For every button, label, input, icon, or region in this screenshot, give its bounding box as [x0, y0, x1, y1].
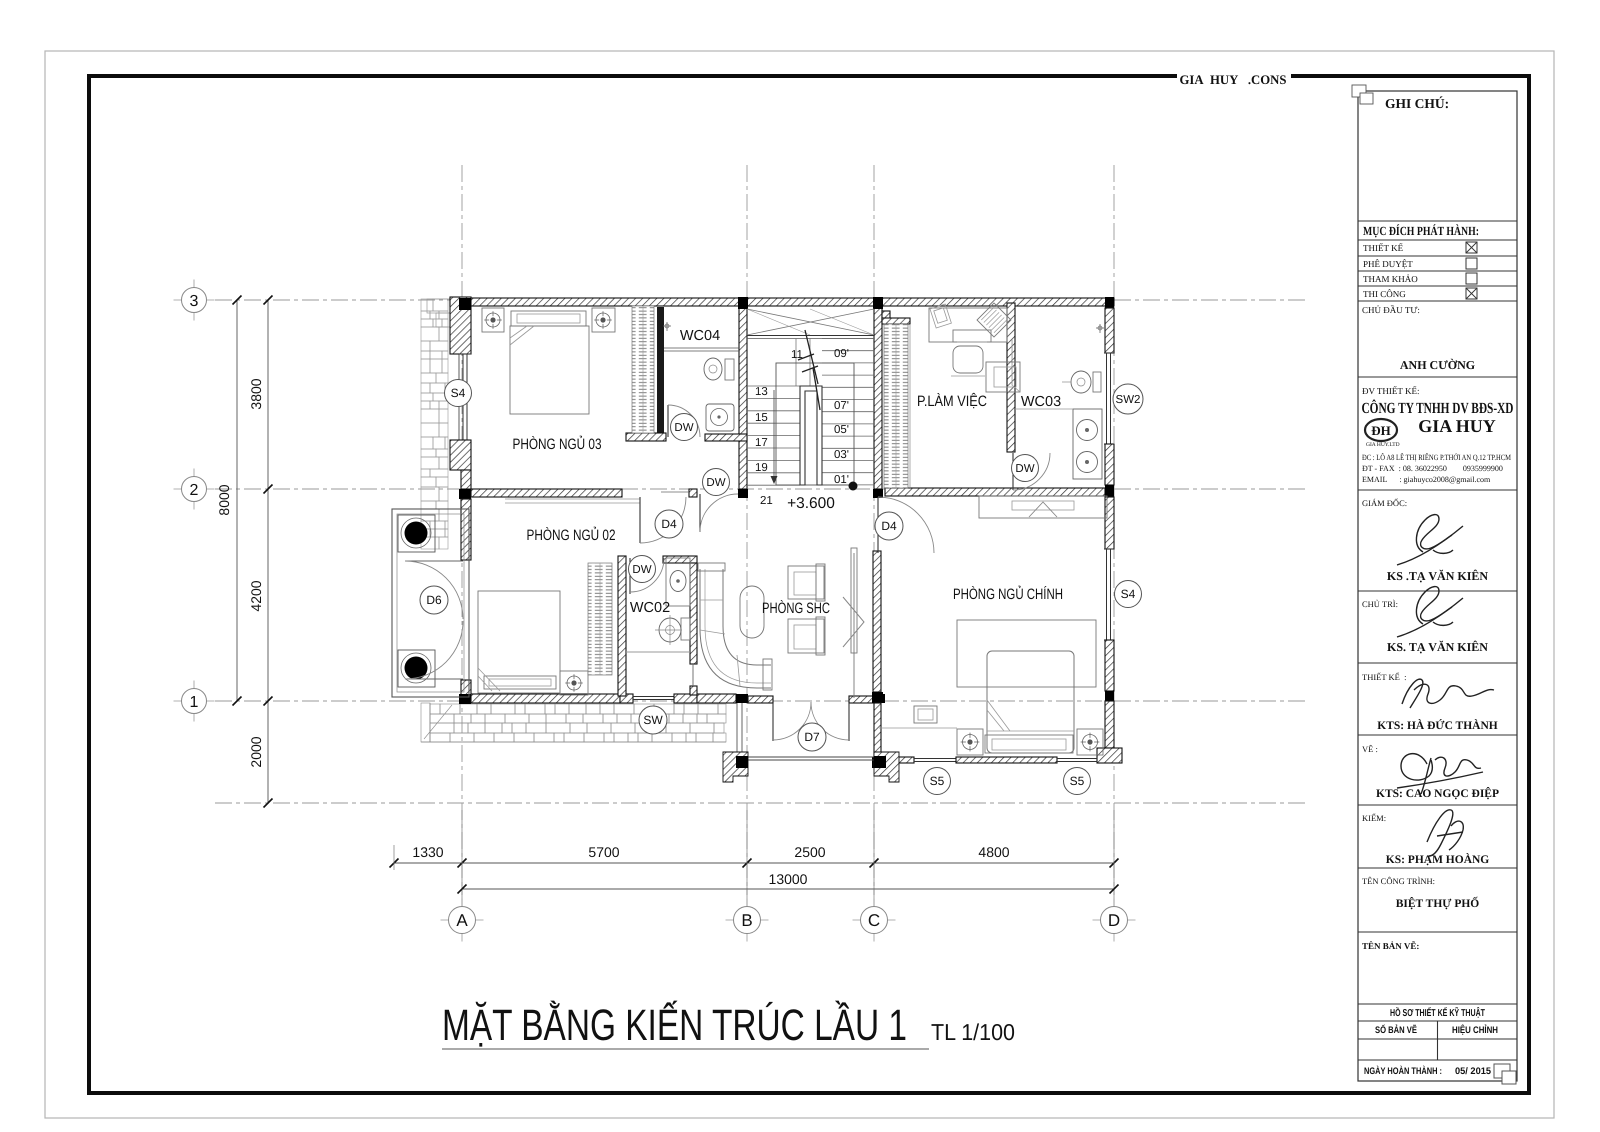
svg-text:MỤC ĐÍCH PHÁT HÀNH:: MỤC ĐÍCH PHÁT HÀNH: [1363, 224, 1479, 238]
svg-text:GIA HUY.LTD: GIA HUY.LTD [1366, 442, 1400, 448]
svg-text:KTS: CAO NGỌC ĐIỆP: KTS: CAO NGỌC ĐIỆP [1376, 787, 1499, 800]
svg-text:09': 09' [834, 348, 849, 360]
svg-text:PHÒNG SHC: PHÒNG SHC [762, 599, 830, 617]
svg-text:+3.600: +3.600 [787, 495, 835, 512]
svg-text:3800: 3800 [248, 378, 264, 409]
svg-text:07': 07' [834, 400, 849, 412]
svg-text:TÊN CÔNG TRÌNH:: TÊN CÔNG TRÌNH: [1362, 876, 1435, 886]
svg-text:NGÀY HOÀN THÀNH :: NGÀY HOÀN THÀNH : [1364, 1065, 1442, 1077]
svg-text:CHỦ ĐẦU TƯ:: CHỦ ĐẦU TƯ: [1362, 305, 1420, 315]
svg-text:PHÒNG NGỦ 02: PHÒNG NGỦ 02 [527, 526, 616, 544]
svg-text:KTS: HÀ ĐỨC THÀNH: KTS: HÀ ĐỨC THÀNH [1377, 719, 1497, 732]
svg-text:HIỆU CHỈNH: HIỆU CHỈNH [1452, 1024, 1498, 1036]
svg-text:05/ 2015: 05/ 2015 [1455, 1066, 1492, 1077]
svg-text:21: 21 [760, 495, 773, 507]
svg-text:D7: D7 [804, 730, 820, 744]
svg-text:THIẾT KẾ: THIẾT KẾ [1363, 243, 1404, 253]
svg-text:17: 17 [755, 437, 768, 449]
svg-text:3: 3 [190, 293, 199, 310]
svg-text:2: 2 [190, 482, 199, 499]
svg-text:SW: SW [643, 713, 663, 727]
svg-text:2000: 2000 [248, 736, 264, 767]
svg-text:03': 03' [834, 449, 849, 461]
svg-text:B: B [741, 911, 752, 930]
svg-text:DW: DW [674, 422, 693, 434]
svg-text:S5: S5 [1070, 774, 1085, 788]
svg-text:ĐV THIẾT KẾ:: ĐV THIẾT KẾ: [1362, 386, 1420, 396]
svg-text:C: C [868, 911, 880, 930]
svg-text:D6: D6 [426, 593, 442, 607]
svg-text:4200: 4200 [248, 580, 264, 611]
svg-text:2500: 2500 [794, 844, 825, 860]
svg-text:KS .TẠ VĂN KIÊN: KS .TẠ VĂN KIÊN [1387, 569, 1488, 583]
svg-text:01': 01' [834, 474, 849, 486]
svg-text:GIÁM ĐỐC:: GIÁM ĐỐC: [1362, 498, 1407, 508]
svg-text:19: 19 [755, 462, 768, 474]
svg-text:D4: D4 [881, 519, 897, 533]
svg-text:D4: D4 [661, 517, 677, 531]
svg-text:PHÒNG NGỦ CHÍNH: PHÒNG NGỦ CHÍNH [953, 585, 1063, 603]
svg-text:S4: S4 [451, 386, 466, 400]
svg-text:PHÊ DUYỆT: PHÊ DUYỆT [1363, 259, 1413, 269]
svg-text:SW2: SW2 [1116, 394, 1141, 406]
svg-text:KS. TẠ VĂN KIÊN: KS. TẠ VĂN KIÊN [1387, 640, 1488, 654]
svg-text:05': 05' [834, 424, 849, 436]
svg-text:DW: DW [632, 564, 651, 576]
svg-text:ĐH: ĐH [1371, 423, 1391, 438]
svg-text:TÊN BẢN VẼ:: TÊN BẢN VẼ: [1362, 941, 1419, 951]
svg-text:CHỦ TRÌ:: CHỦ TRÌ: [1362, 599, 1398, 609]
svg-text:CÔNG TY TNHH DV BĐS-XD: CÔNG TY TNHH DV BĐS-XD [1362, 399, 1514, 417]
svg-text:GIA HUY: GIA HUY [1418, 416, 1496, 436]
svg-text:MẶT BẰNG KIẾN TRÚC LẦU 1: MẶT BẰNG KIẾN TRÚC LẦU 1 [442, 1000, 907, 1050]
svg-text:WC03: WC03 [1021, 394, 1061, 410]
svg-text:11: 11 [791, 349, 803, 361]
svg-text:BIỆT THỰ PHỐ: BIỆT THỰ PHỐ [1396, 896, 1480, 910]
svg-text:GHI CHÚ:: GHI CHÚ: [1385, 96, 1449, 111]
svg-text:15: 15 [755, 412, 768, 424]
svg-text:13000: 13000 [769, 871, 808, 887]
svg-text:THIẾT KẾ :: THIẾT KẾ : [1362, 672, 1406, 682]
svg-text:13: 13 [755, 386, 768, 398]
svg-text:P.LÀM VIỆC: P.LÀM VIỆC [917, 392, 987, 410]
svg-text:TL 1/100: TL 1/100 [931, 1019, 1015, 1045]
svg-text:THAM KHẢO: THAM KHẢO [1363, 274, 1418, 284]
svg-text:HỒ SƠ THIẾT KẾ KỸ THUẬT: HỒ SƠ THIẾT KẾ KỸ THUẬT [1390, 1007, 1485, 1019]
svg-text:S4: S4 [1121, 587, 1136, 601]
svg-text:KS: PHẠM HOÀNG: KS: PHẠM HOÀNG [1386, 853, 1490, 866]
svg-text:VẼ :: VẼ : [1362, 744, 1378, 754]
svg-text:4800: 4800 [978, 844, 1009, 860]
svg-text:GIA HUY .CONS: GIA HUY .CONS [1180, 72, 1287, 87]
svg-text:1: 1 [190, 694, 199, 711]
svg-text:D: D [1108, 911, 1120, 930]
svg-text:WC02: WC02 [630, 600, 670, 616]
svg-text:THI CÔNG: THI CÔNG [1363, 289, 1406, 299]
svg-text:DW: DW [1015, 463, 1034, 475]
svg-text:KIỂM:: KIỂM: [1362, 813, 1386, 823]
svg-text:1330: 1330 [412, 844, 443, 860]
svg-text:S5: S5 [930, 774, 945, 788]
svg-text:PHÒNG NGỦ 03: PHÒNG NGỦ 03 [513, 435, 602, 453]
svg-text:WC04: WC04 [680, 328, 720, 344]
svg-text:DW: DW [706, 477, 725, 489]
svg-text:ĐT - FAX : 08. 36022950: ĐT - FAX : 08. 36022950 0935999900 [1362, 464, 1503, 473]
svg-text:8000: 8000 [216, 484, 232, 515]
svg-text:EMAIL : giahuyco2008@gmai: EMAIL : giahuyco2008@gmail.com [1362, 475, 1491, 484]
svg-text:SỐ BẢN VẼ: SỐ BẢN VẼ [1375, 1024, 1417, 1036]
svg-text:5700: 5700 [588, 844, 619, 860]
svg-text:ANH CƯỜNG: ANH CƯỜNG [1400, 358, 1475, 372]
svg-text:A: A [456, 911, 468, 930]
svg-text:ĐC : LÔ A8 LÊ THỊ RIÊNG P.THỚI: ĐC : LÔ A8 LÊ THỊ RIÊNG P.THỚI AN Q.12 T… [1362, 453, 1511, 462]
